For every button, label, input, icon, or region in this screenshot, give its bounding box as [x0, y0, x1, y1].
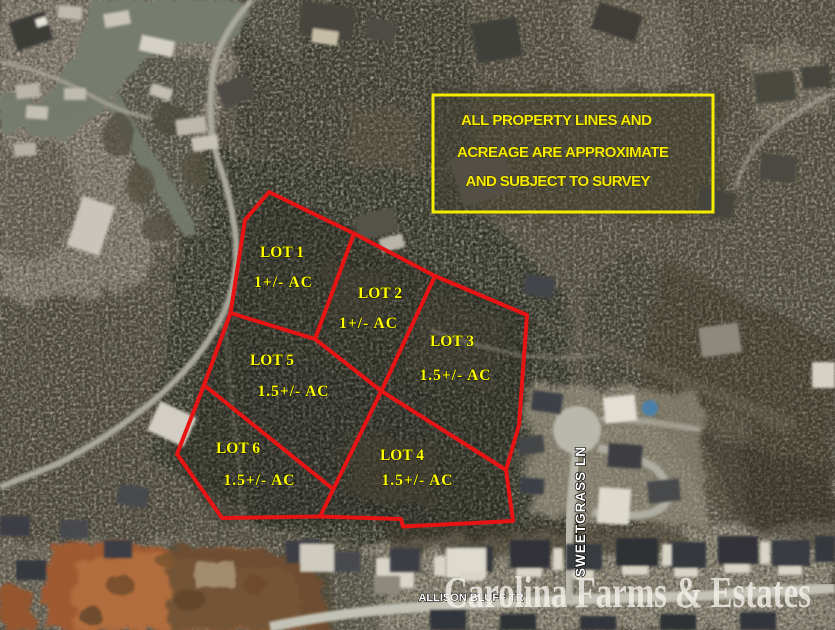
svg-text:1.5+/- AC: 1.5+/- AC: [224, 472, 295, 489]
svg-text:LOT 3: LOT 3: [430, 333, 474, 350]
svg-text:ALL PROPERTY LINES AND: ALL PROPERTY LINES AND: [461, 112, 652, 129]
svg-text:LOT 1: LOT 1: [260, 244, 304, 261]
svg-text:AND SUBJECT TO SURVEY: AND SUBJECT TO SURVEY: [466, 173, 651, 190]
svg-text:LOT 6: LOT 6: [216, 440, 260, 457]
svg-text:Carolina Farms & Estates: Carolina Farms & Estates: [444, 568, 811, 617]
svg-text:ACREAGE ARE APPROXIMATE: ACREAGE ARE APPROXIMATE: [457, 144, 669, 161]
svg-text:SWEETGRASS LN: SWEETGRASS LN: [573, 447, 588, 577]
svg-text:1.5+/- AC: 1.5+/- AC: [420, 367, 491, 384]
svg-text:1+/- AC: 1+/- AC: [339, 315, 397, 332]
svg-text:LOT 5: LOT 5: [250, 352, 294, 369]
svg-text:LOT 4: LOT 4: [380, 447, 424, 464]
svg-text:1+/- AC: 1+/- AC: [254, 274, 312, 291]
svg-text:LOT 2: LOT 2: [358, 285, 402, 302]
svg-text:1.5+/- AC: 1.5+/- AC: [258, 383, 329, 400]
svg-text:1.5+/- AC: 1.5+/- AC: [382, 472, 453, 489]
